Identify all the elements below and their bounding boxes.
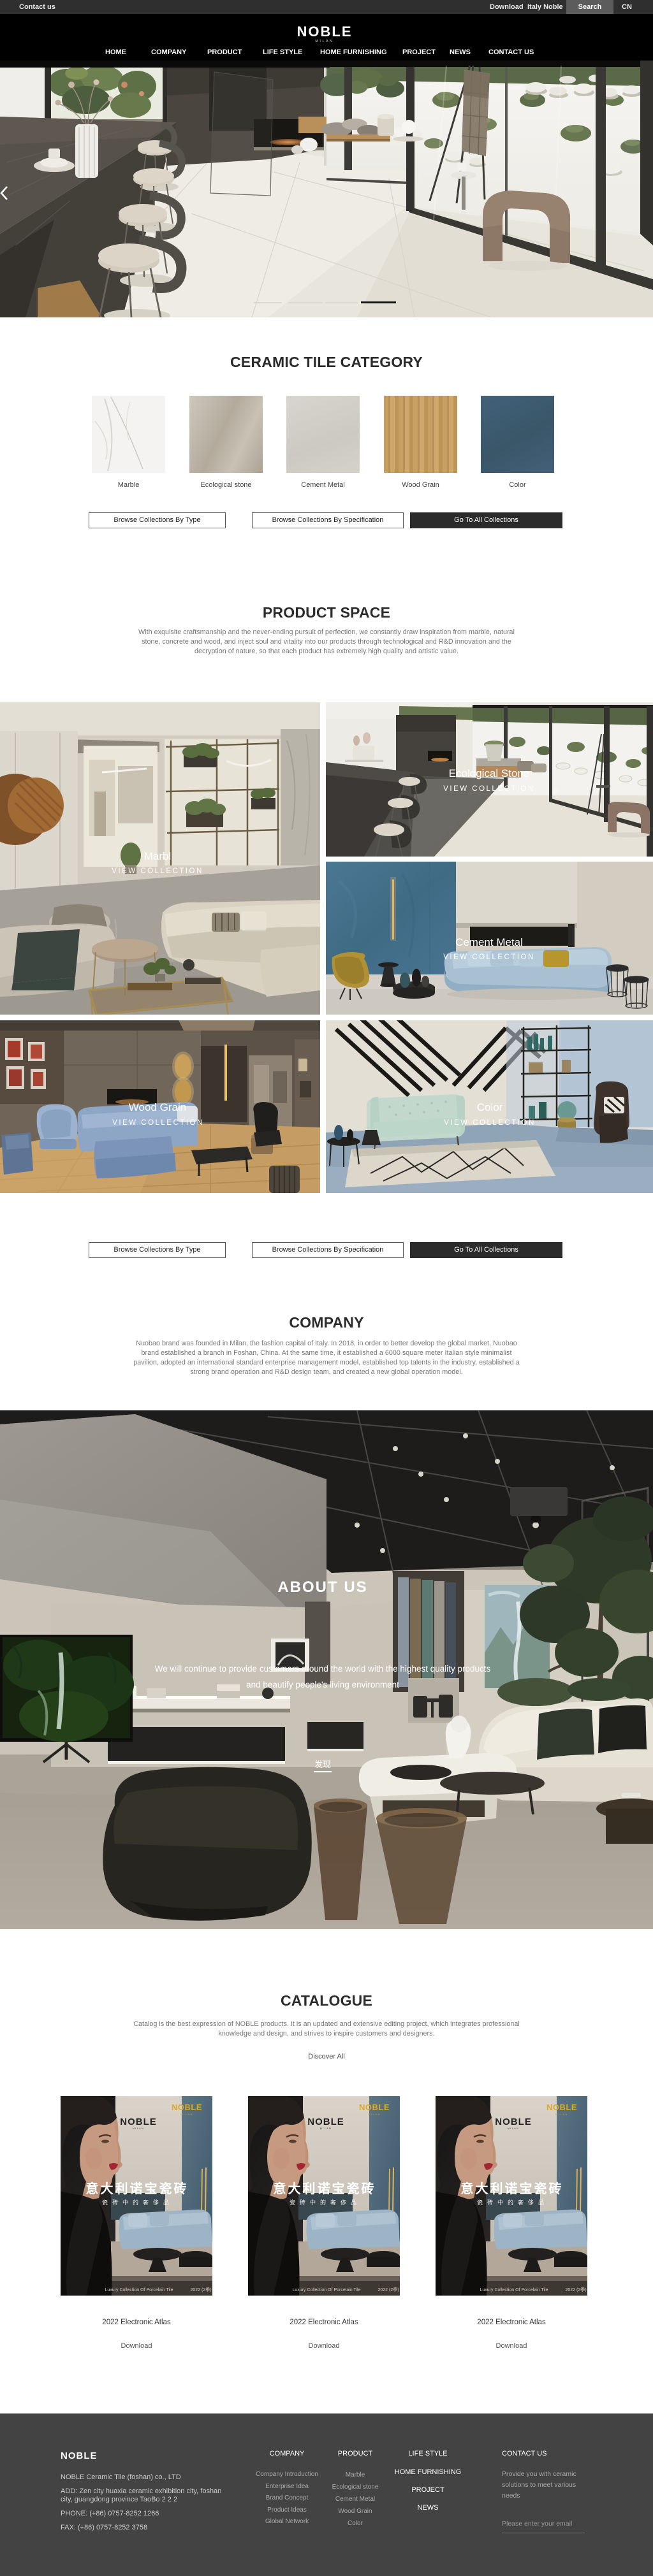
svg-text:VIEW COLLECTION: VIEW COLLECTION — [112, 1119, 204, 1127]
svg-text:VIEW COLLECTION: VIEW COLLECTION — [443, 785, 535, 793]
svg-text:Wood Grain: Wood Grain — [129, 1101, 186, 1113]
svg-text:瓷砖中的奢侈品: 瓷砖中的奢侈品 — [102, 2199, 173, 2206]
svg-text:Luxury Collection Of Porcelain: Luxury Collection Of Porcelain Tile — [105, 2288, 173, 2292]
svg-text:瓷砖中的奢侈品: 瓷砖中的奢侈品 — [290, 2199, 361, 2206]
svg-text:VIEW COLLECTION: VIEW COLLECTION — [443, 953, 535, 961]
svg-text:Luxury Collection Of Porcelain: Luxury Collection Of Porcelain Tile — [480, 2288, 548, 2292]
svg-text:We will continue to provide cu: We will continue to provide customers ar… — [155, 1664, 491, 1674]
svg-text:意大利诺宝瓷砖: 意大利诺宝瓷砖 — [86, 2181, 189, 2196]
svg-text:MILAN: MILAN — [180, 2113, 193, 2116]
svg-text:NOBLE: NOBLE — [172, 2102, 202, 2112]
svg-text:MILAN: MILAN — [508, 2127, 519, 2130]
svg-text:ABOUT US: ABOUT US — [277, 1579, 367, 1596]
svg-text:MILAN: MILAN — [368, 2113, 381, 2116]
svg-text:意大利诺宝瓷砖: 意大利诺宝瓷砖 — [461, 2181, 564, 2196]
svg-text:Color: Color — [477, 1101, 503, 1113]
svg-text:Cement Metal: Cement Metal — [455, 936, 523, 948]
svg-text:MILAN: MILAN — [320, 2127, 332, 2130]
svg-text:意大利诺宝瓷砖: 意大利诺宝瓷砖 — [274, 2181, 376, 2196]
svg-text:and beautify people's living e: and beautify people's living environment — [246, 1680, 399, 1690]
svg-text:Luxury Collection Of Porcelain: Luxury Collection Of Porcelain Tile — [293, 2288, 361, 2292]
svg-text:Marbl: Marbl — [144, 850, 172, 862]
svg-text:NOBLE: NOBLE — [359, 2102, 390, 2112]
svg-text:2022 (2季): 2022 (2季) — [565, 2287, 586, 2292]
svg-text:瓷砖中的奢侈品: 瓷砖中的奢侈品 — [477, 2199, 548, 2206]
svg-text:NOBLE: NOBLE — [547, 2102, 577, 2112]
svg-text:发现: 发现 — [314, 1760, 331, 1769]
svg-text:2022 (2季): 2022 (2季) — [190, 2287, 211, 2292]
svg-text:NOBLE: NOBLE — [307, 2117, 344, 2127]
svg-text:MILAN: MILAN — [133, 2127, 144, 2130]
svg-text:VIEW COLLECTION: VIEW COLLECTION — [112, 867, 203, 875]
svg-text:NOBLE: NOBLE — [495, 2117, 532, 2127]
svg-text:2022 (2季): 2022 (2季) — [378, 2287, 399, 2292]
svg-text:NOBLE: NOBLE — [120, 2117, 157, 2127]
svg-text:Ecological Stone: Ecological Stone — [449, 767, 530, 779]
svg-text:VIEW COLLECTION: VIEW COLLECTION — [444, 1119, 536, 1127]
svg-text:MILAN: MILAN — [555, 2113, 568, 2116]
